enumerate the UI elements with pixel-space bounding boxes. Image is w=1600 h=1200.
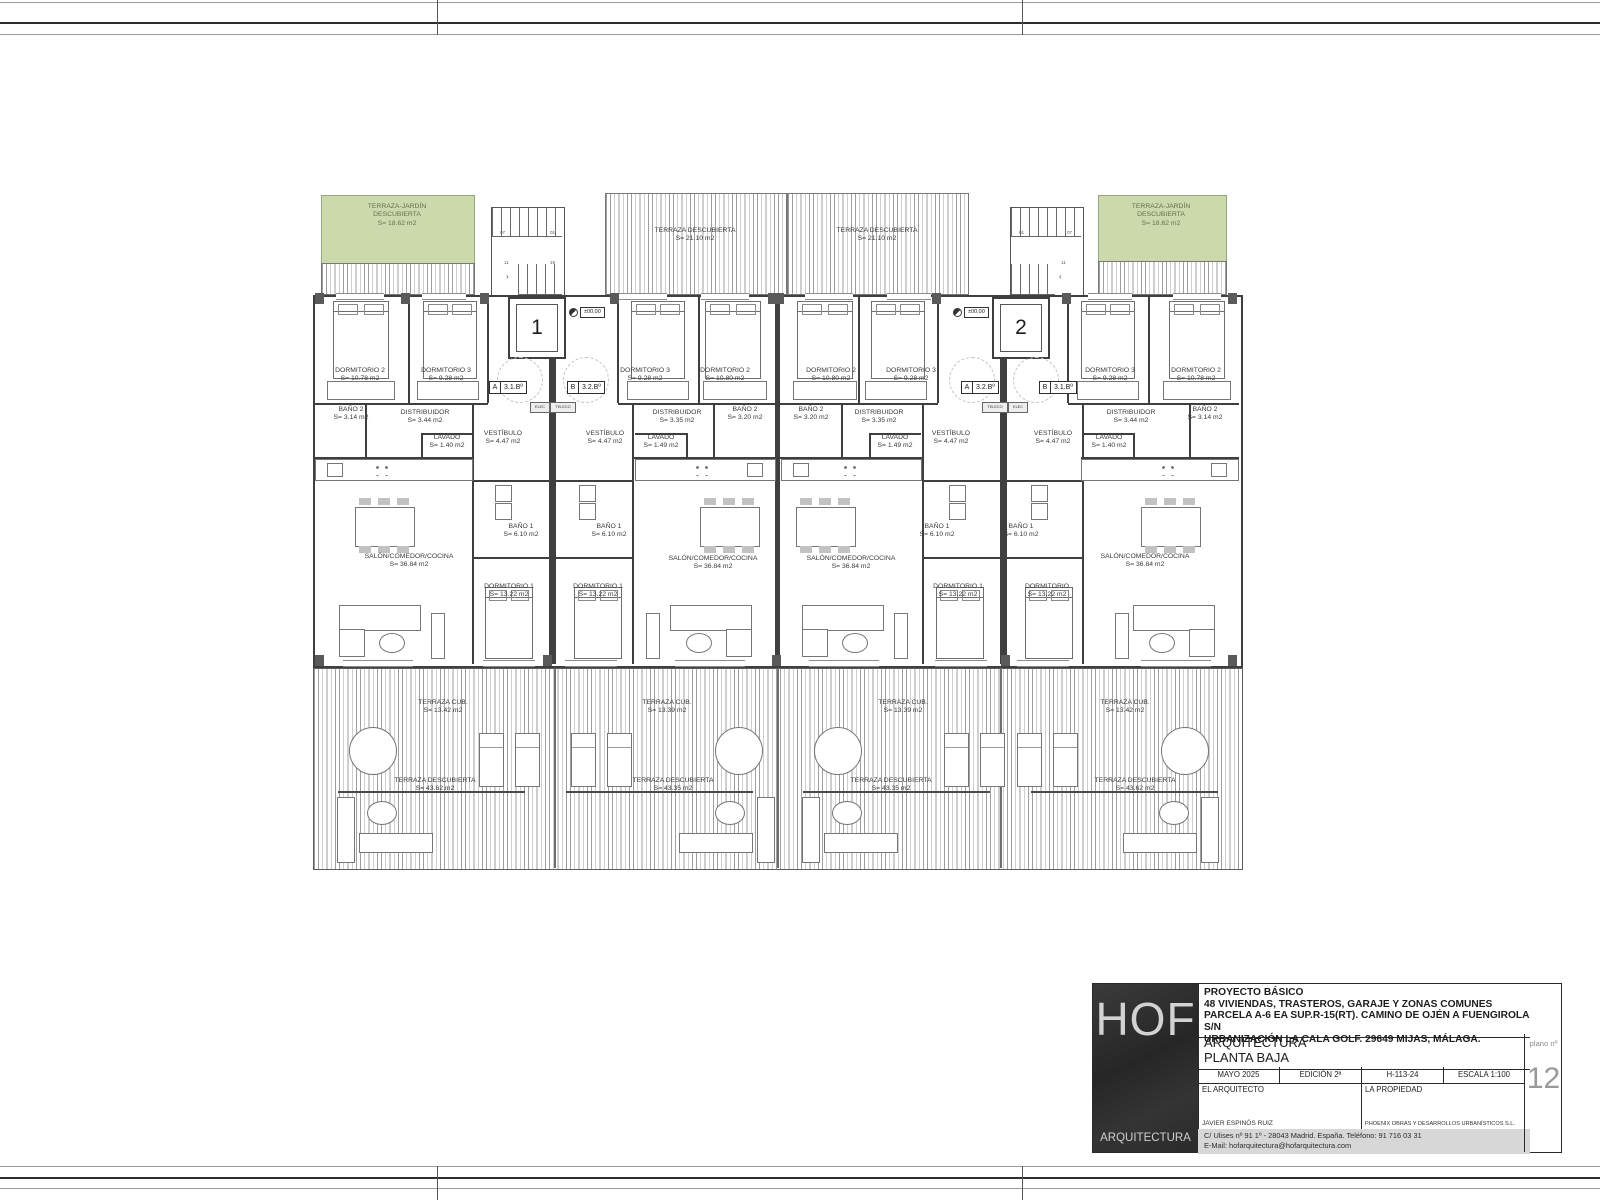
room-label: DORMITORIO 2S= 10.80 m2: [700, 367, 750, 384]
stair-number: 01: [1019, 230, 1024, 235]
level-marker: ±00.00: [569, 307, 605, 318]
outdoor-sofa: [359, 833, 433, 853]
pergola-hatch-left: [321, 263, 475, 295]
sun-lounger: [607, 733, 632, 787]
room-label: VESTÍBULOS= 4.47 m2: [484, 430, 522, 447]
dining-table: [700, 507, 760, 547]
elevator-2: 2: [992, 297, 1050, 359]
room-label: VESTÍBULOS= 4.47 m2: [586, 430, 624, 447]
elec-box: ELEC: [1008, 402, 1028, 413]
sun-lounger: [515, 733, 540, 787]
sun-lounger: [571, 733, 596, 787]
room-label: TERRAZA CUB.S= 13.39 m2: [642, 699, 691, 716]
outdoor-sofa: [824, 833, 898, 853]
room-label: DORMITORIO 1S= 13.22 m2: [573, 583, 623, 600]
outdoor-sofa: [1201, 797, 1219, 863]
owner-name: PHOENIX OBRAS Y DESARROLLOS URBANÍSTICOS…: [1365, 1121, 1515, 1127]
room-label: DISTRIBUIDORS= 3.35 m2: [855, 409, 904, 426]
stair-number: 19: [550, 260, 555, 265]
room-label: BAÑO 1S= 6.10 m2: [1004, 523, 1039, 540]
room-label: TERRAZA DESCUBIERTAS= 43.62 m2: [1095, 777, 1176, 794]
hof-logo: HOF ARQUITECTURA: [1093, 984, 1199, 1152]
room-label: TERRAZA CUB.S= 13.39 m2: [878, 699, 927, 716]
room-label: BAÑO 2S= 3.20 m2: [794, 406, 829, 423]
sofa: [670, 605, 752, 631]
sofa: [726, 629, 752, 657]
room-label: VESTÍBULOS= 4.47 m2: [932, 430, 970, 447]
room-label: BAÑO 2S= 3.14 m2: [1188, 406, 1223, 423]
room-label: DORMITORIO 2S= 10.78 m2: [1171, 367, 1221, 384]
architect-cell: EL ARQUITECTO JAVIER ESPINÓS RUIZ: [1198, 1083, 1362, 1130]
room-label: SALÓN/COMEDOR/COCINAS= 36.84 m2: [365, 553, 454, 570]
unit-tag: B3.2.Bº: [567, 381, 605, 394]
sheet-number-label: plano nº: [1525, 1039, 1562, 1048]
stair-number: 01: [550, 230, 555, 235]
sofa: [1189, 629, 1215, 657]
stair-number: 11: [1061, 260, 1066, 265]
room-label: LAVADOS= 1.49 m2: [644, 434, 679, 451]
room-label: BAÑO 1S= 6.10 m2: [920, 523, 955, 540]
level-marker-icon: [953, 308, 962, 317]
dining-table: [1141, 507, 1201, 547]
teleco-box: TELECO: [982, 402, 1008, 413]
floor-plan: 07 01 11 19 › 01 07 11 ‹: [313, 185, 1243, 875]
staircase-left: 07 01 11 19 ›: [491, 207, 565, 297]
terrace-table: [715, 727, 763, 775]
outdoor-sofa: [337, 797, 355, 863]
terrace-table: [1161, 727, 1209, 775]
outdoor-sofa: [757, 797, 775, 863]
room-label: DORMITORIOS= 13.22 m2: [1025, 583, 1069, 600]
contact-info: C/ Ulises nº 91 1º - 28043 Madrid. Españ…: [1198, 1129, 1530, 1154]
scale-cell: ESCALA 1:100: [1444, 1067, 1524, 1084]
unit-tag: B3.1.Bº: [1039, 381, 1077, 394]
room-label: TERRAZA DESCUBIERTAS= 21.10 m2: [655, 227, 736, 244]
teleco-box: TELECO: [550, 402, 576, 413]
level-marker-icon: [569, 308, 578, 317]
room-label: DORMITORIO 2S= 10.78 m2: [335, 367, 385, 384]
sun-lounger: [944, 733, 969, 787]
outdoor-sofa: [802, 797, 820, 863]
title-block: HOF ARQUITECTURA PROYECTO BÁSICO 48 VIVI…: [1092, 983, 1562, 1153]
room-label: DORMITORIO 2S= 10.80 m2: [806, 367, 856, 384]
room-label: BAÑO 2S= 3.20 m2: [728, 406, 763, 423]
room-label: LAVADOS= 1.40 m2: [1092, 434, 1127, 451]
stair-number: 11: [504, 260, 509, 265]
owner-cell: LA PROPIEDAD PHOENIX OBRAS Y DESARROLLOS…: [1361, 1083, 1524, 1130]
room-label: TERRAZA DESCUBIERTAS= 21.10 m2: [837, 227, 918, 244]
logo-subtext: ARQUITECTURA: [1093, 1132, 1198, 1144]
outdoor-sofa: [1123, 833, 1197, 853]
room-label: SALÓN/COMEDOR/COCINAS= 36.84 m2: [669, 555, 758, 572]
elec-box: ELEC: [530, 402, 550, 413]
elevator-1: 1: [508, 297, 566, 359]
staircase-right: 01 07 11 ‹: [1010, 207, 1084, 297]
sheet-title: ARQUITECTURA PLANTA BAJA: [1198, 1034, 1530, 1070]
room-label: SALÓN/COMEDOR/COCINAS= 36.84 m2: [807, 555, 896, 572]
room-label: TERRAZA-JARDÍN DESCUBIERTAS= 18.62 m2: [1119, 203, 1203, 228]
room-label: DORMITORIO 3S= 9.28 m2: [620, 367, 670, 384]
room-label: BAÑO 1S= 6.10 m2: [504, 523, 539, 540]
stair-direction-arrow: ‹: [1059, 272, 1062, 281]
stair-direction-arrow: ›: [506, 272, 509, 281]
sun-lounger: [1017, 733, 1042, 787]
terrace-table: [349, 727, 397, 775]
sofa: [339, 629, 365, 657]
room-label: SALÓN/COMEDOR/COCINAS= 36.84 m2: [1101, 553, 1190, 570]
room-label: DORMITORIO 3S= 9.28 m2: [421, 367, 471, 384]
outdoor-sofa: [679, 833, 753, 853]
room-label: DORMITORIO 1S= 13.22 m2: [933, 583, 983, 600]
room-label: DISTRIBUIDORS= 3.44 m2: [1107, 409, 1156, 426]
drawing-sheet: 07 01 11 19 › 01 07 11 ‹: [0, 0, 1600, 1200]
room-label: DORMITORIO 3S= 9.28 m2: [886, 367, 936, 384]
code-cell: H-113-24: [1362, 1067, 1444, 1084]
sofa: [802, 629, 828, 657]
room-label: LAVADOS= 1.49 m2: [878, 434, 913, 451]
sofa: [1133, 605, 1215, 631]
dining-table: [355, 507, 415, 547]
room-label: DORMITORIO 1S= 13.22 m2: [484, 583, 534, 600]
date-cell: MAYO 2025: [1198, 1067, 1280, 1084]
room-label: TERRAZA CUB.S= 13.42 m2: [1100, 699, 1149, 716]
project-description: PROYECTO BÁSICO 48 VIVIENDAS, TRASTEROS,…: [1198, 984, 1530, 1038]
architect-name: JAVIER ESPINÓS RUIZ: [1202, 1120, 1273, 1127]
sun-lounger: [479, 733, 504, 787]
terraza-descubierta-mid-left: [605, 193, 787, 295]
pergola-hatch-right: [1098, 261, 1227, 295]
sheet-number: 12: [1525, 1062, 1562, 1096]
elevator-number: 1: [531, 316, 543, 340]
room-label: TERRAZA DESCUBIERTAS= 43.35 m2: [633, 777, 714, 794]
sofa: [339, 605, 421, 631]
level-marker: ±00.00: [953, 307, 989, 318]
stair-number: 07: [1067, 230, 1072, 235]
terraza-descubierta-mid-right: [787, 193, 969, 295]
edition-cell: EDICIÓN 2ª: [1280, 1067, 1362, 1084]
room-label: TERRAZA DESCUBIERTAS= 43.35 m2: [851, 777, 932, 794]
dining-table: [796, 507, 856, 547]
room-label: TERRAZA CUB.S= 13.42 m2: [418, 699, 467, 716]
sheet-number-box: plano nº 12: [1524, 1034, 1562, 1152]
room-label: BAÑO 2S= 3.14 m2: [334, 406, 369, 423]
room-label: BAÑO 1S= 6.10 m2: [592, 523, 627, 540]
sun-lounger: [1053, 733, 1078, 787]
logo-text: HOF: [1093, 992, 1198, 1046]
unit-tag: A3.1.Bº: [489, 381, 527, 394]
sun-lounger: [980, 733, 1005, 787]
room-label: TERRAZA-JARDÍN DESCUBIERTAS= 18.62 m2: [355, 203, 439, 228]
room-label: VESTÍBULOS= 4.47 m2: [1034, 430, 1072, 447]
stair-number: 07: [500, 230, 505, 235]
room-label: TERRAZA DESCUBIERTAS= 43.62 m2: [395, 777, 476, 794]
room-label: LAVADOS= 1.40 m2: [430, 434, 465, 451]
room-label: DORMITORIO 3S= 9.28 m2: [1085, 367, 1135, 384]
elevator-number: 2: [1015, 316, 1027, 340]
room-label: DISTRIBUIDORS= 3.35 m2: [653, 409, 702, 426]
terrace-table: [814, 727, 862, 775]
room-label: DISTRIBUIDORS= 3.44 m2: [401, 409, 450, 426]
unit-tag: A3.2.Bº: [961, 381, 999, 394]
sofa: [802, 605, 884, 631]
